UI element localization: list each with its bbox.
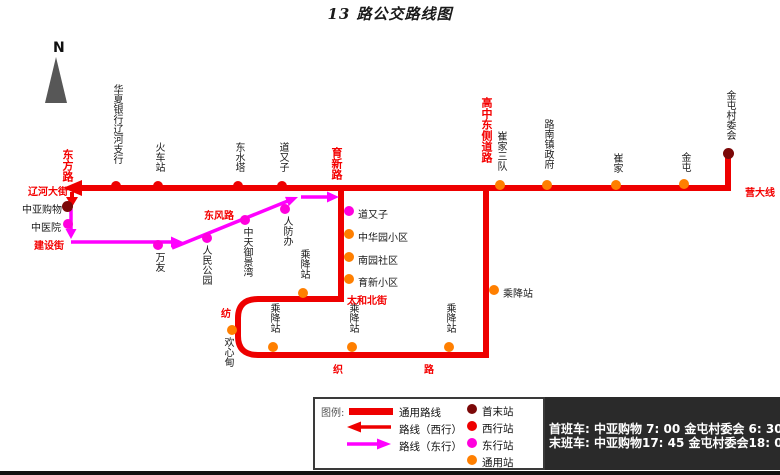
station-dot-jintun [679, 179, 689, 189]
station-label-nanyuanshequ: 南园社区 [358, 252, 398, 267]
general-route-swatch [349, 408, 393, 415]
legend-title: 图例: [321, 404, 344, 419]
station-dot-chengjiang-4 [444, 342, 454, 352]
station-dot-zhongtianyujingwan [240, 215, 250, 225]
road-label-gaozhong-dongce: 高中东侧道路 [480, 97, 493, 163]
station-label-dongshuita: 东水塔 [232, 142, 244, 172]
station-label-chengjiang-4: 乘降站 [443, 303, 455, 333]
station-dot-jintuncunweihui [723, 148, 734, 159]
station-label-lunanzhenzhengfu: 路南镇政府 [541, 119, 553, 169]
road-label-dongfeng: 东风路 [204, 207, 234, 222]
schedule-last-bus: 末班车: 中亚购物17: 45 金屯村委会18: 00 [549, 434, 780, 451]
legend-label-east-station: 东行站 [482, 438, 514, 453]
station-dot-lunanzhenzhengfu [542, 180, 552, 190]
east-end-arrowhead-icon [327, 192, 339, 203]
road-label-taihe-beijie: 太和北街 [347, 292, 387, 307]
station-dot-cuijia [611, 180, 621, 190]
legend-label-general-route: 通用路线 [399, 405, 441, 420]
legend-label-west-station: 西行站 [482, 421, 514, 436]
station-dot-wanyou [153, 240, 163, 250]
station-dot-daoyouzi-west [277, 181, 287, 191]
station-dot-chengjiang-5 [489, 285, 499, 295]
station-dot-cuijiasandui [495, 180, 505, 190]
west-route-arrow-icon [345, 420, 395, 434]
east-down-arrowhead-icon [66, 229, 77, 239]
station-dot-daoyouzi-east [344, 206, 354, 216]
terminal-station-swatch [467, 404, 477, 414]
station-dot-huaxia [111, 181, 121, 191]
road-label-jianshe-jie: 建设街 [34, 237, 64, 252]
legend-label-general-station: 通用站 [482, 455, 514, 470]
road-label-fangzhi-1: 纺 [221, 305, 231, 320]
station-dot-dongshuita [233, 181, 243, 191]
east-station-swatch [467, 438, 477, 448]
station-dot-chengjiang-1 [298, 288, 308, 298]
road-label-dongfang: 东方路 [61, 149, 74, 182]
west-station-swatch [467, 421, 477, 431]
station-dot-zhonghuayuanxiaoqu [344, 229, 354, 239]
general-station-swatch [467, 455, 477, 465]
east-route-arrow-icon [345, 437, 395, 451]
station-label-huochezhan: 火车站 [152, 142, 164, 172]
station-dot-yuxinxiaoqu [344, 274, 354, 284]
station-label-daoyouzi-east: 道又子 [358, 206, 388, 221]
station-label-renfangban: 人防办 [280, 216, 292, 246]
road-label-fangzhi-2: 织 [333, 361, 343, 376]
station-label-chengjiang-3: 乘降站 [346, 303, 358, 333]
legend-label-east-route: 路线（东行） [399, 439, 462, 454]
road-label-yuxin: 育新路 [330, 147, 343, 180]
station-dot-huanxindian [227, 325, 237, 335]
station-label-chengjiang-1: 乘降站 [297, 249, 309, 279]
road-label-liaohe-dajie: 辽河大街 [28, 183, 68, 198]
station-dot-huochezhan [153, 181, 163, 191]
station-dot-chengjiang-2 [268, 342, 278, 352]
station-dot-chengjiang-3 [347, 342, 357, 352]
station-dot-nanyuanshequ [344, 252, 354, 262]
station-label-cuijiasandui: 崔家三队 [494, 131, 506, 171]
station-dot-zhongyagouwu [62, 201, 73, 212]
road-label-fangzhi-3: 路 [424, 361, 434, 376]
station-dot-renfangban [280, 204, 290, 214]
station-label-huanxindian: 欢心甸 [221, 337, 233, 367]
bus-route-map: 13 路公交路线图 N 华夏银行辽河支行 火车站 东水塔 道又 [0, 0, 780, 475]
station-label-yuxinxiaoqu: 育新小区 [358, 274, 398, 289]
station-label-zhongtianyujingwan: 中天御景湾 [240, 227, 252, 277]
legend-label-terminal-station: 首末站 [482, 404, 514, 419]
station-label-daoyouzi-west: 道又子 [276, 142, 288, 172]
station-label-renmingongyuan: 人民公园 [199, 245, 211, 285]
legend-label-west-route: 路线（西行） [399, 422, 462, 437]
station-label-chengjiang-5: 乘降站 [503, 285, 533, 300]
station-dot-zhongyiyuan [63, 219, 73, 229]
station-label-zhonghuayuanxiaoqu: 中华园小区 [358, 229, 408, 244]
route-main-line [82, 156, 728, 188]
station-label-jintun: 金屯 [678, 152, 690, 172]
road-label-yingda-xian: 营大线 [745, 184, 775, 199]
station-label-zhongyagouwu: 中亚购物 [22, 201, 62, 216]
station-label-wanyou: 万友 [152, 252, 164, 272]
station-label-jintuncunweihui: 金屯村委会 [723, 90, 735, 140]
station-label-zhongyiyuan: 中医院 [31, 219, 61, 234]
bottom-bar [0, 471, 780, 475]
station-dot-renmingongyuan [202, 233, 212, 243]
station-label-huaxia: 华夏银行辽河支行 [110, 84, 122, 164]
station-label-cuijia: 崔家 [610, 153, 622, 173]
station-label-chengjiang-2: 乘降站 [267, 303, 279, 333]
legend-box: 图例: 通用路线 路线（西行） 路线（东行） 首末站 西行站 东行站 通用站 [313, 397, 545, 470]
schedule-panel: 首班车: 中亚购物 7: 00 金屯村委会 6: 30 末班车: 中亚购物17:… [545, 397, 780, 470]
